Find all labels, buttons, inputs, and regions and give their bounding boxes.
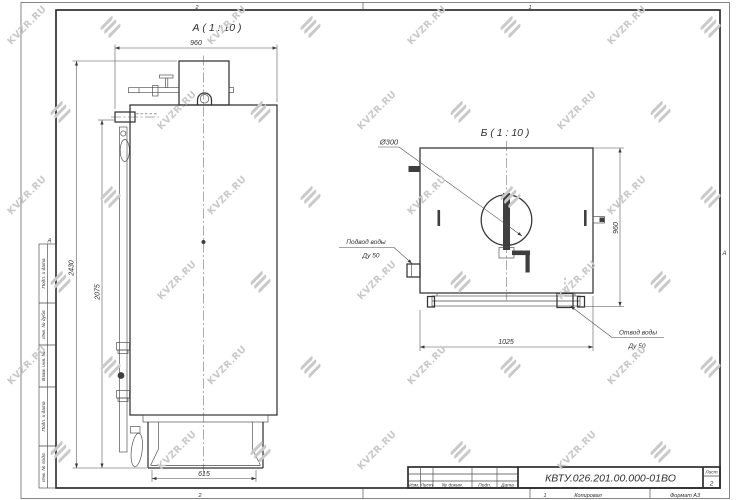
zone-bottom-1: 1: [543, 493, 546, 499]
zone-row-letter-left: А: [46, 239, 51, 245]
inlet-label-line2: Ду 50: [362, 253, 380, 260]
view-b: Б ( 1 : 10 ): [339, 127, 664, 351]
dim-2075: 2075: [95, 284, 102, 301]
hinge-upper: [117, 343, 130, 351]
inlet-label-line1: Подвод воды: [346, 238, 386, 246]
water-outlet-fitting: [557, 294, 573, 308]
view-a-title: А ( 1 : 10 ): [191, 22, 241, 34]
dim-1025: 1025: [498, 339, 514, 346]
zone-top-1: 1: [528, 5, 531, 11]
water-inlet-stub: [407, 264, 420, 277]
hinge-lower: [117, 391, 130, 399]
field-podp-i-data-1: Подп. и дата: [41, 258, 47, 288]
boiler-body-side: [111, 56, 277, 477]
engineering-drawing: 2 1 2 1 А А Копировал Формат А3 Подп. и …: [0, 0, 750, 500]
col-izm: Изм.: [409, 483, 419, 489]
dim-960-right: 960: [613, 222, 620, 234]
dim-615: 615: [198, 471, 210, 478]
dim-diameter-300: Ø300: [379, 138, 399, 147]
latch-hook: [120, 140, 129, 162]
view-b-title: Б ( 1 : 10 ): [481, 127, 530, 139]
upper-left-stub: [409, 166, 421, 172]
flue-pipe: [503, 193, 510, 250]
field-podp-i-data-2: Подп. и дата: [41, 401, 47, 431]
door-handle: [129, 433, 144, 468]
door-knob: [118, 372, 125, 379]
title-block: Изм. Лист № докум. Подп. Дата КВТУ.026.2…: [408, 467, 720, 489]
format-label: Формат А3: [670, 493, 701, 499]
copied-label: Копировал: [574, 493, 601, 499]
sheet-label: Лист: [704, 470, 717, 476]
field-inv-podl: Инв. № подл.: [41, 452, 47, 482]
sheet-number: 2: [709, 481, 714, 488]
view-a-dimensions: 960 2430 2075 615: [69, 40, 278, 482]
outlet-label-line2: Ду 50: [628, 343, 646, 350]
dim-960-top: 960: [190, 40, 202, 47]
base-pedestal: [143, 415, 268, 468]
drawing-sheet: 2 1 2 1 А А Копировал Формат А3 Подп. и …: [0, 0, 750, 500]
outlet-label-line1: Отвод воды: [619, 329, 657, 337]
col-list: Лист: [420, 483, 433, 489]
zone-row-letter-right: А: [721, 251, 726, 257]
left-margin-fields: Подп. и дата Инв. № дубл. Взам. инв. № П…: [39, 244, 56, 488]
doc-number: КВТУ.026.201.00.000-01ВО: [545, 473, 676, 485]
field-vzam-inv: Взам. инв. №: [41, 351, 47, 381]
field-inv-dubl: Инв. № дубл.: [41, 309, 47, 339]
col-podp: Подп.: [478, 483, 491, 489]
zone-top-2: 2: [194, 5, 198, 11]
col-ndocum: № докум.: [442, 483, 463, 489]
dim-2430: 2430: [69, 260, 76, 277]
view-a: А ( 1 : 10 ) 960 2430 2075 615: [69, 22, 278, 482]
chimney-box: [129, 61, 234, 105]
damper-handle: [526, 255, 530, 273]
zone-bottom-2: 2: [197, 493, 201, 499]
boiler-body-rear: [407, 141, 605, 300]
col-data: Дата: [500, 483, 514, 489]
